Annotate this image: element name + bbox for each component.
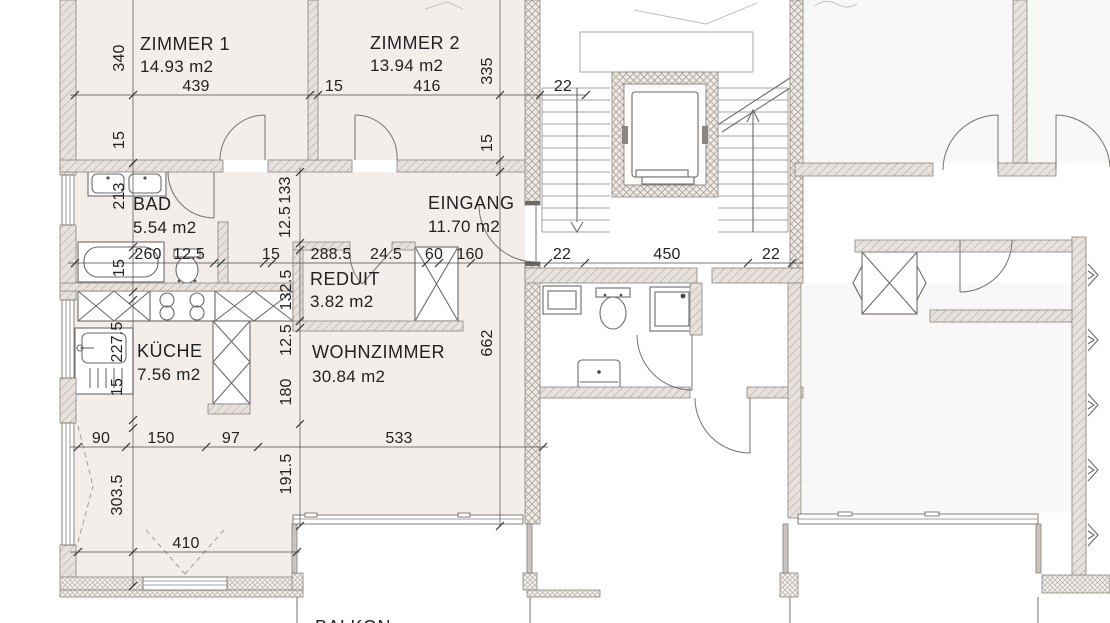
neighbor-bath-fixtures xyxy=(543,286,694,390)
reduit-south-wall xyxy=(293,321,463,331)
dim-60: 60 xyxy=(425,246,443,263)
neighbor-toilet-tank xyxy=(596,288,630,297)
core-west-wall-upper xyxy=(525,0,540,205)
dim-97: 97 xyxy=(222,430,240,447)
elevator-overrun-outline xyxy=(580,32,753,72)
neighbor-wardrobe xyxy=(853,252,926,314)
dim-303-5: 303.5 xyxy=(109,474,126,515)
dim-410: 410 xyxy=(172,535,199,552)
dim-132-5: 132.5 xyxy=(278,269,295,310)
dim-90: 90 xyxy=(92,430,110,447)
balcony-side-wall-right xyxy=(527,524,532,573)
neighbor-balcony-side-left xyxy=(783,524,788,573)
right-divider-wall xyxy=(930,310,1078,322)
shower-drain-dot xyxy=(681,294,686,299)
neighbor-bath-south-wall-1 xyxy=(540,387,690,398)
dim-439: 439 xyxy=(182,78,209,95)
dim-22-top: 22 xyxy=(554,78,572,95)
label-zimmer1: ZIMMER 1 xyxy=(140,34,230,54)
label-zimmer2: ZIMMER 2 xyxy=(370,33,460,53)
balcony-pier-left xyxy=(292,573,303,590)
dim-213: 213 xyxy=(111,182,128,209)
dim-160: 160 xyxy=(456,246,483,263)
dim-340: 340 xyxy=(111,44,128,71)
dim-416: 416 xyxy=(413,78,440,95)
neighbor-balcony-pier-left xyxy=(780,573,798,597)
core-east-wall xyxy=(790,0,803,268)
neighbor-balcony-side-right xyxy=(1036,524,1041,573)
kueche-wall-stub xyxy=(208,404,250,414)
casement-window-icon xyxy=(1088,459,1098,481)
dim-12-5-a: 12.5 xyxy=(277,206,294,238)
stair-flight-left xyxy=(542,88,610,232)
neighbor-washbasin xyxy=(578,360,620,390)
dim-662: 662 xyxy=(479,329,496,356)
area-zimmer1: 14.93 m2 xyxy=(140,57,213,76)
dim-180: 180 xyxy=(278,378,295,405)
toilet-dot-2 xyxy=(194,280,197,283)
dim-150: 150 xyxy=(147,430,174,447)
dim-191-5: 191.5 xyxy=(278,453,295,494)
balcony-pier-right xyxy=(523,573,537,590)
label-reduit: REDUIT xyxy=(310,269,380,289)
right-window-casement-icons xyxy=(1088,264,1098,546)
balcony-slab-edge-right xyxy=(527,590,600,597)
label-eingang: EINGANG xyxy=(428,193,515,213)
neighbor-bath-wall xyxy=(690,283,702,335)
dim-133: 133 xyxy=(277,176,294,203)
zimmer-south-wall-2 xyxy=(268,160,352,172)
bad-window xyxy=(62,175,74,225)
dim-15-right: 15 xyxy=(479,134,496,152)
dim-15-left-c: 15 xyxy=(109,378,126,396)
casement-window-icon xyxy=(1088,264,1098,286)
west-wall-3 xyxy=(60,378,76,423)
area-eingang: 11.70 m2 xyxy=(428,217,500,236)
elevator-guide-rail-left xyxy=(622,126,628,144)
elevator-guide-rail-right xyxy=(702,126,708,144)
neighbor-toilet-bowl xyxy=(600,297,626,329)
neighbor-room-door-arc xyxy=(695,398,750,453)
core-west-wall-lower xyxy=(525,262,540,524)
balcony-side-wall-left xyxy=(292,524,297,573)
elevator-door-panel-2 xyxy=(642,177,694,184)
south-window xyxy=(143,577,227,590)
stair-break-line-2 xyxy=(722,88,790,132)
elevator-door-panel-1 xyxy=(636,170,688,177)
floor-plan-drawing: ZIMMER 1 14.93 m2 ZIMMER 2 13.94 m2 BAD … xyxy=(0,0,1110,623)
casement-window-icon xyxy=(1088,394,1098,416)
neighbor-mid-wall xyxy=(788,283,801,518)
neighbor-toilet-dot-1 xyxy=(604,294,607,297)
core-south-wall-2 xyxy=(712,268,803,283)
shower-tray xyxy=(650,287,694,331)
dim-15-left-a: 15 xyxy=(111,131,128,149)
neighbor-bath-door-arc xyxy=(637,335,692,390)
cutoff-mark-1 xyxy=(634,3,757,24)
label-bad: BAD xyxy=(133,194,172,214)
corridor-north-wall xyxy=(855,240,1078,252)
neighbor-balcony-slab-edge xyxy=(1042,575,1110,593)
label-wohnzimmer: WOHNZIMMER xyxy=(312,342,445,362)
faucet-dot-right xyxy=(143,176,146,179)
dim-22-left: 22 xyxy=(553,246,571,263)
dim-12-5-b: 12.5 xyxy=(278,324,295,356)
wohnzimmer-west-window xyxy=(62,423,74,545)
dim-22-right: 22 xyxy=(762,246,780,263)
stove xyxy=(150,291,215,321)
zimmer-south-wall-1 xyxy=(60,160,223,172)
right-vert-wall xyxy=(1013,0,1027,163)
west-wall-4 xyxy=(60,545,76,577)
dim-335: 335 xyxy=(479,57,496,84)
kueche-window xyxy=(62,300,74,378)
dim-260: 260 xyxy=(134,246,161,263)
kitchen-tall-cabinet xyxy=(213,321,250,404)
kitchen-cabinet-left xyxy=(78,291,150,321)
area-zimmer2: 13.94 m2 xyxy=(370,56,443,75)
stair-arrow-down-icon xyxy=(571,222,583,232)
casement-window-icon xyxy=(1088,524,1098,546)
right-horiz-wall-1 xyxy=(795,163,933,176)
dim-533: 533 xyxy=(385,430,412,447)
dim-24-5: 24.5 xyxy=(370,246,402,263)
neighbor-corner-shelf xyxy=(543,286,581,314)
dim-15-mid: 15 xyxy=(262,246,280,263)
label-kueche: KÜCHE xyxy=(137,341,203,361)
wohnzimmer-balcony-glazing xyxy=(293,515,523,524)
floor-plan-page: ZIMMER 1 14.93 m2 ZIMMER 2 13.94 m2 BAD … xyxy=(0,0,1110,623)
faucet-dot-left xyxy=(106,176,109,179)
toilet-dot-1 xyxy=(178,280,181,283)
elevator-car xyxy=(632,92,698,177)
dim-15-left-b: 15 xyxy=(111,259,128,277)
neighbor-toilet-dot-2 xyxy=(620,294,623,297)
dim-450: 450 xyxy=(653,246,680,263)
right-horiz-wall-2 xyxy=(998,163,1056,176)
label-balkon-cutoff: BALKON xyxy=(315,617,391,623)
core-south-wall-1 xyxy=(525,268,697,283)
west-wall-1 xyxy=(60,0,76,175)
dim-15-top: 15 xyxy=(325,78,343,95)
area-kueche: 7.56 m2 xyxy=(137,365,201,384)
staircase-core xyxy=(542,32,790,232)
bad-kueche-wall xyxy=(60,283,293,291)
entrance-door-jamb-top xyxy=(525,201,540,205)
area-wohnzimmer: 30.84 m2 xyxy=(312,367,385,386)
dim-12-5-mid: 12.5 xyxy=(173,246,205,263)
dim-288-5: 288.5 xyxy=(310,246,351,263)
balcony-slab-edge-left xyxy=(60,590,303,597)
zimmer-south-wall-3 xyxy=(397,160,540,172)
entrance-door-jamb-bottom xyxy=(525,262,540,266)
bad-east-wall xyxy=(218,222,228,283)
dim-227-5: 227.5 xyxy=(109,321,126,362)
area-reduit: 3.82 m2 xyxy=(310,292,374,311)
far-right-wall xyxy=(1072,237,1086,590)
neighbor-washbasin-dot xyxy=(597,370,601,374)
casement-window-icon xyxy=(1088,329,1098,351)
area-bad: 5.54 m2 xyxy=(133,218,197,237)
zimmer-partition-wall xyxy=(308,0,318,160)
